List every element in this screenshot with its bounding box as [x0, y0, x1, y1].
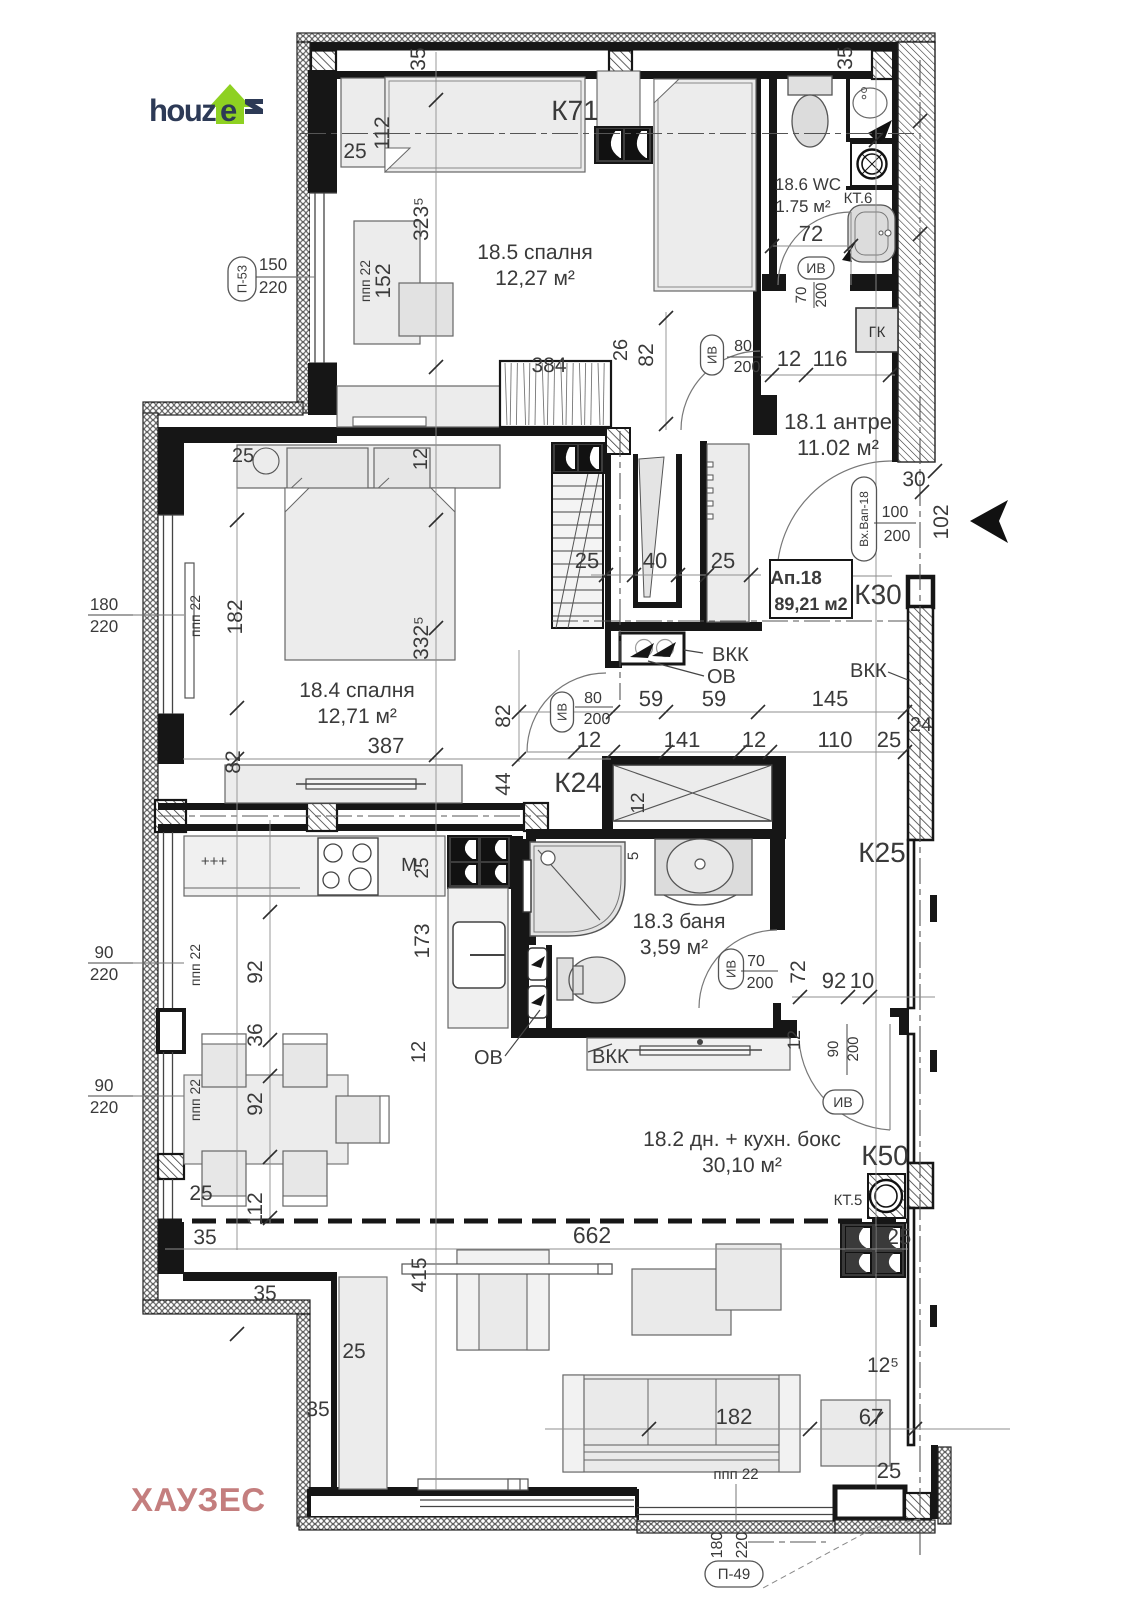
- svg-text:173: 173: [411, 923, 434, 958]
- svg-text:Вх.Вап-18: Вх.Вап-18: [857, 491, 871, 547]
- svg-text:180: 180: [709, 1532, 726, 1559]
- svg-text:25: 25: [343, 140, 366, 163]
- svg-text:ВКК: ВКК: [712, 644, 749, 666]
- svg-text:40: 40: [643, 548, 667, 573]
- svg-text:323⁵: 323⁵: [410, 197, 433, 241]
- svg-text:18.1 антре: 18.1 антре: [784, 409, 892, 434]
- svg-text:12⁵: 12⁵: [867, 1354, 899, 1377]
- svg-text:К71: К71: [551, 95, 598, 126]
- svg-text:150: 150: [259, 255, 287, 274]
- svg-text:18.4 спалня: 18.4 спалня: [299, 679, 414, 702]
- svg-text:182: 182: [716, 1404, 753, 1429]
- svg-text:25: 25: [711, 548, 735, 573]
- svg-text:90: 90: [95, 1076, 114, 1095]
- svg-text:+++: +++: [201, 853, 228, 870]
- svg-text:18.6 WC: 18.6 WC: [775, 175, 841, 194]
- svg-text:ИВ: ИВ: [806, 260, 825, 276]
- svg-text:332⁵: 332⁵: [410, 616, 433, 660]
- svg-text:18.3 баня: 18.3 баня: [633, 910, 726, 933]
- svg-text:116: 116: [812, 346, 847, 371]
- svg-text:182: 182: [224, 599, 247, 634]
- svg-text:30,10 м²: 30,10 м²: [702, 1154, 782, 1177]
- svg-text:112: 112: [371, 116, 394, 149]
- svg-text:ОВ: ОВ: [707, 666, 736, 688]
- svg-text:145: 145: [812, 686, 849, 711]
- svg-text:11.02 м²: 11.02 м²: [797, 435, 879, 460]
- svg-text:70: 70: [793, 287, 810, 304]
- svg-text:18.5 спалня: 18.5 спалня: [477, 241, 592, 264]
- svg-text:ИВ: ИВ: [554, 703, 569, 721]
- svg-text:387: 387: [368, 733, 405, 758]
- svg-text:59: 59: [639, 686, 663, 711]
- svg-text:200: 200: [813, 282, 830, 307]
- svg-text:П-53: П-53: [234, 265, 249, 293]
- svg-text:200: 200: [584, 711, 611, 728]
- svg-text:ппп 22: ппп 22: [187, 595, 203, 637]
- svg-text:12: 12: [577, 727, 601, 752]
- svg-text:24: 24: [910, 714, 932, 736]
- svg-text:82: 82: [635, 343, 658, 366]
- svg-text:25: 25: [877, 1458, 901, 1483]
- svg-text:220: 220: [90, 965, 118, 984]
- svg-text:70: 70: [747, 953, 765, 970]
- svg-text:90: 90: [825, 1041, 842, 1058]
- svg-text:ппп 22: ппп 22: [357, 260, 373, 302]
- svg-text:ппп 22: ппп 22: [187, 1079, 203, 1121]
- svg-text:200: 200: [884, 528, 911, 545]
- svg-text:12,71 м²: 12,71 м²: [317, 705, 397, 728]
- svg-text:59: 59: [702, 686, 726, 711]
- svg-text:ГК: ГК: [869, 324, 886, 341]
- svg-text:82: 82: [222, 750, 245, 773]
- svg-text:e: e: [220, 93, 237, 128]
- svg-text:112: 112: [244, 1192, 267, 1225]
- svg-text:141: 141: [664, 727, 701, 752]
- svg-text:220: 220: [90, 617, 118, 636]
- svg-text:44: 44: [492, 772, 515, 796]
- svg-text:72: 72: [787, 960, 810, 983]
- svg-text:82: 82: [492, 704, 515, 727]
- svg-text:89,21 м2: 89,21 м2: [774, 594, 847, 614]
- svg-text:200: 200: [747, 975, 774, 992]
- svg-text:92: 92: [244, 1092, 267, 1115]
- svg-text:220: 220: [259, 278, 287, 297]
- svg-text:25: 25: [342, 1340, 365, 1363]
- svg-text:72: 72: [799, 221, 823, 246]
- svg-text:К24: К24: [554, 767, 601, 798]
- svg-text:200: 200: [845, 1036, 862, 1061]
- svg-text:80: 80: [734, 338, 752, 355]
- svg-text:ИВ: ИВ: [704, 346, 719, 364]
- svg-text:12: 12: [784, 1030, 804, 1050]
- svg-text:КТ.6: КТ.6: [844, 190, 873, 207]
- svg-text:36: 36: [244, 1023, 267, 1046]
- svg-text:ппп 22: ппп 22: [713, 1466, 758, 1483]
- svg-text:12: 12: [410, 448, 432, 470]
- svg-text:К25: К25: [858, 837, 905, 868]
- svg-text:35: 35: [253, 1282, 276, 1305]
- svg-text:ИВ: ИВ: [723, 960, 738, 978]
- svg-text:200: 200: [734, 359, 761, 376]
- svg-text:18.2 дн. + кухн. бокс: 18.2 дн. + кухн. бокс: [643, 1128, 841, 1151]
- svg-text:25: 25: [887, 1224, 911, 1249]
- svg-text:ВКК: ВКК: [850, 660, 887, 682]
- svg-text:12,27 м²: 12,27 м²: [495, 267, 575, 290]
- svg-text:220: 220: [90, 1098, 118, 1117]
- svg-text:35: 35: [407, 47, 430, 70]
- svg-text:415: 415: [408, 1257, 431, 1292]
- svg-text:80: 80: [584, 690, 602, 707]
- svg-text:КТ.5: КТ.5: [834, 1192, 863, 1209]
- svg-text:3,59 м²: 3,59 м²: [640, 936, 708, 959]
- svg-text:25: 25: [189, 1182, 212, 1205]
- svg-text:662: 662: [573, 1222, 611, 1248]
- svg-text:К50: К50: [861, 1140, 908, 1171]
- svg-text:25: 25: [575, 548, 599, 573]
- svg-text:100: 100: [882, 504, 909, 521]
- svg-text:12: 12: [408, 1041, 430, 1063]
- svg-text:90: 90: [95, 943, 114, 962]
- svg-text:ИВ: ИВ: [833, 1094, 852, 1110]
- svg-text:П-49: П-49: [718, 1566, 750, 1583]
- svg-text:35: 35: [834, 46, 857, 69]
- svg-text:houz: houz: [149, 93, 216, 128]
- svg-text:Ап.18: Ап.18: [770, 568, 822, 589]
- svg-text:25: 25: [232, 445, 254, 467]
- svg-text:220: 220: [734, 1532, 751, 1559]
- svg-text:35: 35: [193, 1226, 216, 1249]
- svg-text:25: 25: [877, 727, 901, 752]
- svg-text:12: 12: [777, 346, 801, 371]
- svg-text:30: 30: [902, 468, 925, 491]
- svg-text:ХАУЗЕС: ХАУЗЕС: [131, 1481, 266, 1518]
- svg-text:ппп 22: ппп 22: [187, 944, 203, 986]
- svg-text:25: 25: [412, 857, 433, 878]
- svg-text:10: 10: [850, 968, 874, 993]
- svg-text:110: 110: [817, 727, 852, 752]
- svg-text:152: 152: [372, 263, 395, 298]
- svg-text:12: 12: [628, 792, 649, 813]
- svg-text:35: 35: [306, 1398, 329, 1421]
- svg-text:92: 92: [244, 960, 267, 983]
- svg-text:26: 26: [610, 339, 632, 361]
- svg-text:384: 384: [531, 354, 566, 377]
- svg-text:ОВ: ОВ: [474, 1047, 503, 1069]
- svg-text:К30: К30: [854, 579, 901, 610]
- svg-text:12: 12: [742, 727, 766, 752]
- svg-text:102: 102: [930, 504, 953, 539]
- svg-text:180: 180: [90, 595, 118, 614]
- svg-text:92: 92: [822, 968, 846, 993]
- svg-text:1.75 м²: 1.75 м²: [775, 197, 830, 216]
- svg-text:5: 5: [625, 852, 642, 860]
- svg-text:67: 67: [859, 1404, 883, 1429]
